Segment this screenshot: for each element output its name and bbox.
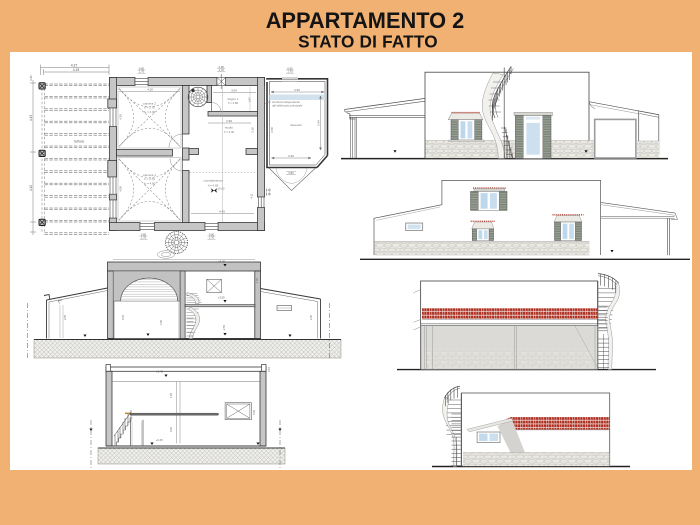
svg-text:5.44: 5.44 <box>316 120 320 126</box>
svg-text:0.45: 0.45 <box>29 75 33 81</box>
svg-text:2.55: 2.55 <box>222 324 226 330</box>
svg-text:APPARTAMENTO 2: APPARTAMENTO 2 <box>266 8 465 33</box>
svg-text:tettoia: tettoia <box>74 140 84 144</box>
svg-text:+2.55: +2.55 <box>218 296 225 300</box>
svg-text:1.95: 1.95 <box>255 277 259 283</box>
svg-text:2.00: 2.00 <box>266 192 272 196</box>
svg-text:h = 2.00: h = 2.00 <box>224 130 235 134</box>
svg-text:2.50: 2.50 <box>309 314 313 320</box>
svg-text:4.20: 4.20 <box>119 114 123 120</box>
svg-text:2.16: 2.16 <box>251 127 255 133</box>
svg-text:h = 2.80: h = 2.80 <box>228 101 239 105</box>
svg-text:4.55: 4.55 <box>252 409 256 415</box>
svg-text:1.70: 1.70 <box>139 70 145 74</box>
svg-text:2.90: 2.90 <box>159 319 163 325</box>
svg-text:2.60: 2.60 <box>288 154 294 158</box>
svg-text:1.70: 1.70 <box>287 70 293 74</box>
svg-text:+0.45: +0.45 <box>156 438 163 442</box>
svg-text:3.90: 3.90 <box>294 88 300 92</box>
svg-text:1.70: 1.70 <box>219 68 225 72</box>
svg-text:4.12: 4.12 <box>29 185 33 191</box>
svg-text:STATO DI FATTO: STATO DI FATTO <box>298 32 438 52</box>
svg-text:1.70: 1.70 <box>141 236 147 240</box>
svg-text:+5.40: +5.40 <box>218 260 226 264</box>
svg-text:1.95: 1.95 <box>169 392 173 398</box>
svg-text:4.08: 4.08 <box>119 186 123 192</box>
svg-text:deposito: deposito <box>290 123 302 127</box>
svg-text:4.45: 4.45 <box>219 210 225 214</box>
svg-text:0.40: 0.40 <box>268 367 271 372</box>
svg-text:hₓ = 4.00: hₓ = 4.00 <box>144 181 156 185</box>
svg-text:hₓ = 4.00: hₓ = 4.00 <box>144 110 156 114</box>
svg-text:3.04: 3.04 <box>231 89 237 93</box>
svg-text:3.00: 3.00 <box>169 426 173 432</box>
svg-text:±0.00: ±0.00 <box>218 187 225 191</box>
svg-text:+5.40: +5.40 <box>156 370 164 374</box>
svg-text:1.70: 1.70 <box>209 236 215 240</box>
svg-text:2.99: 2.99 <box>226 119 232 123</box>
svg-text:4.20: 4.20 <box>147 88 153 92</box>
svg-text:cucina/pranzo: cucina/pranzo <box>203 179 223 183</box>
svg-text:1.40: 1.40 <box>266 188 272 192</box>
svg-text:2.55: 2.55 <box>63 314 67 320</box>
svg-text:0.80: 0.80 <box>288 171 294 175</box>
svg-text:4.19: 4.19 <box>73 68 80 72</box>
svg-text:4.55: 4.55 <box>121 314 125 320</box>
svg-text:1.67: 1.67 <box>248 97 252 103</box>
svg-text:4.13: 4.13 <box>29 115 33 121</box>
svg-text:4.37: 4.37 <box>71 63 78 67</box>
svg-text:dal fabbricato principale: dal fabbricato principale <box>272 104 303 108</box>
svg-text:4.11: 4.11 <box>250 193 254 199</box>
svg-text:6.58: 6.58 <box>270 127 274 133</box>
